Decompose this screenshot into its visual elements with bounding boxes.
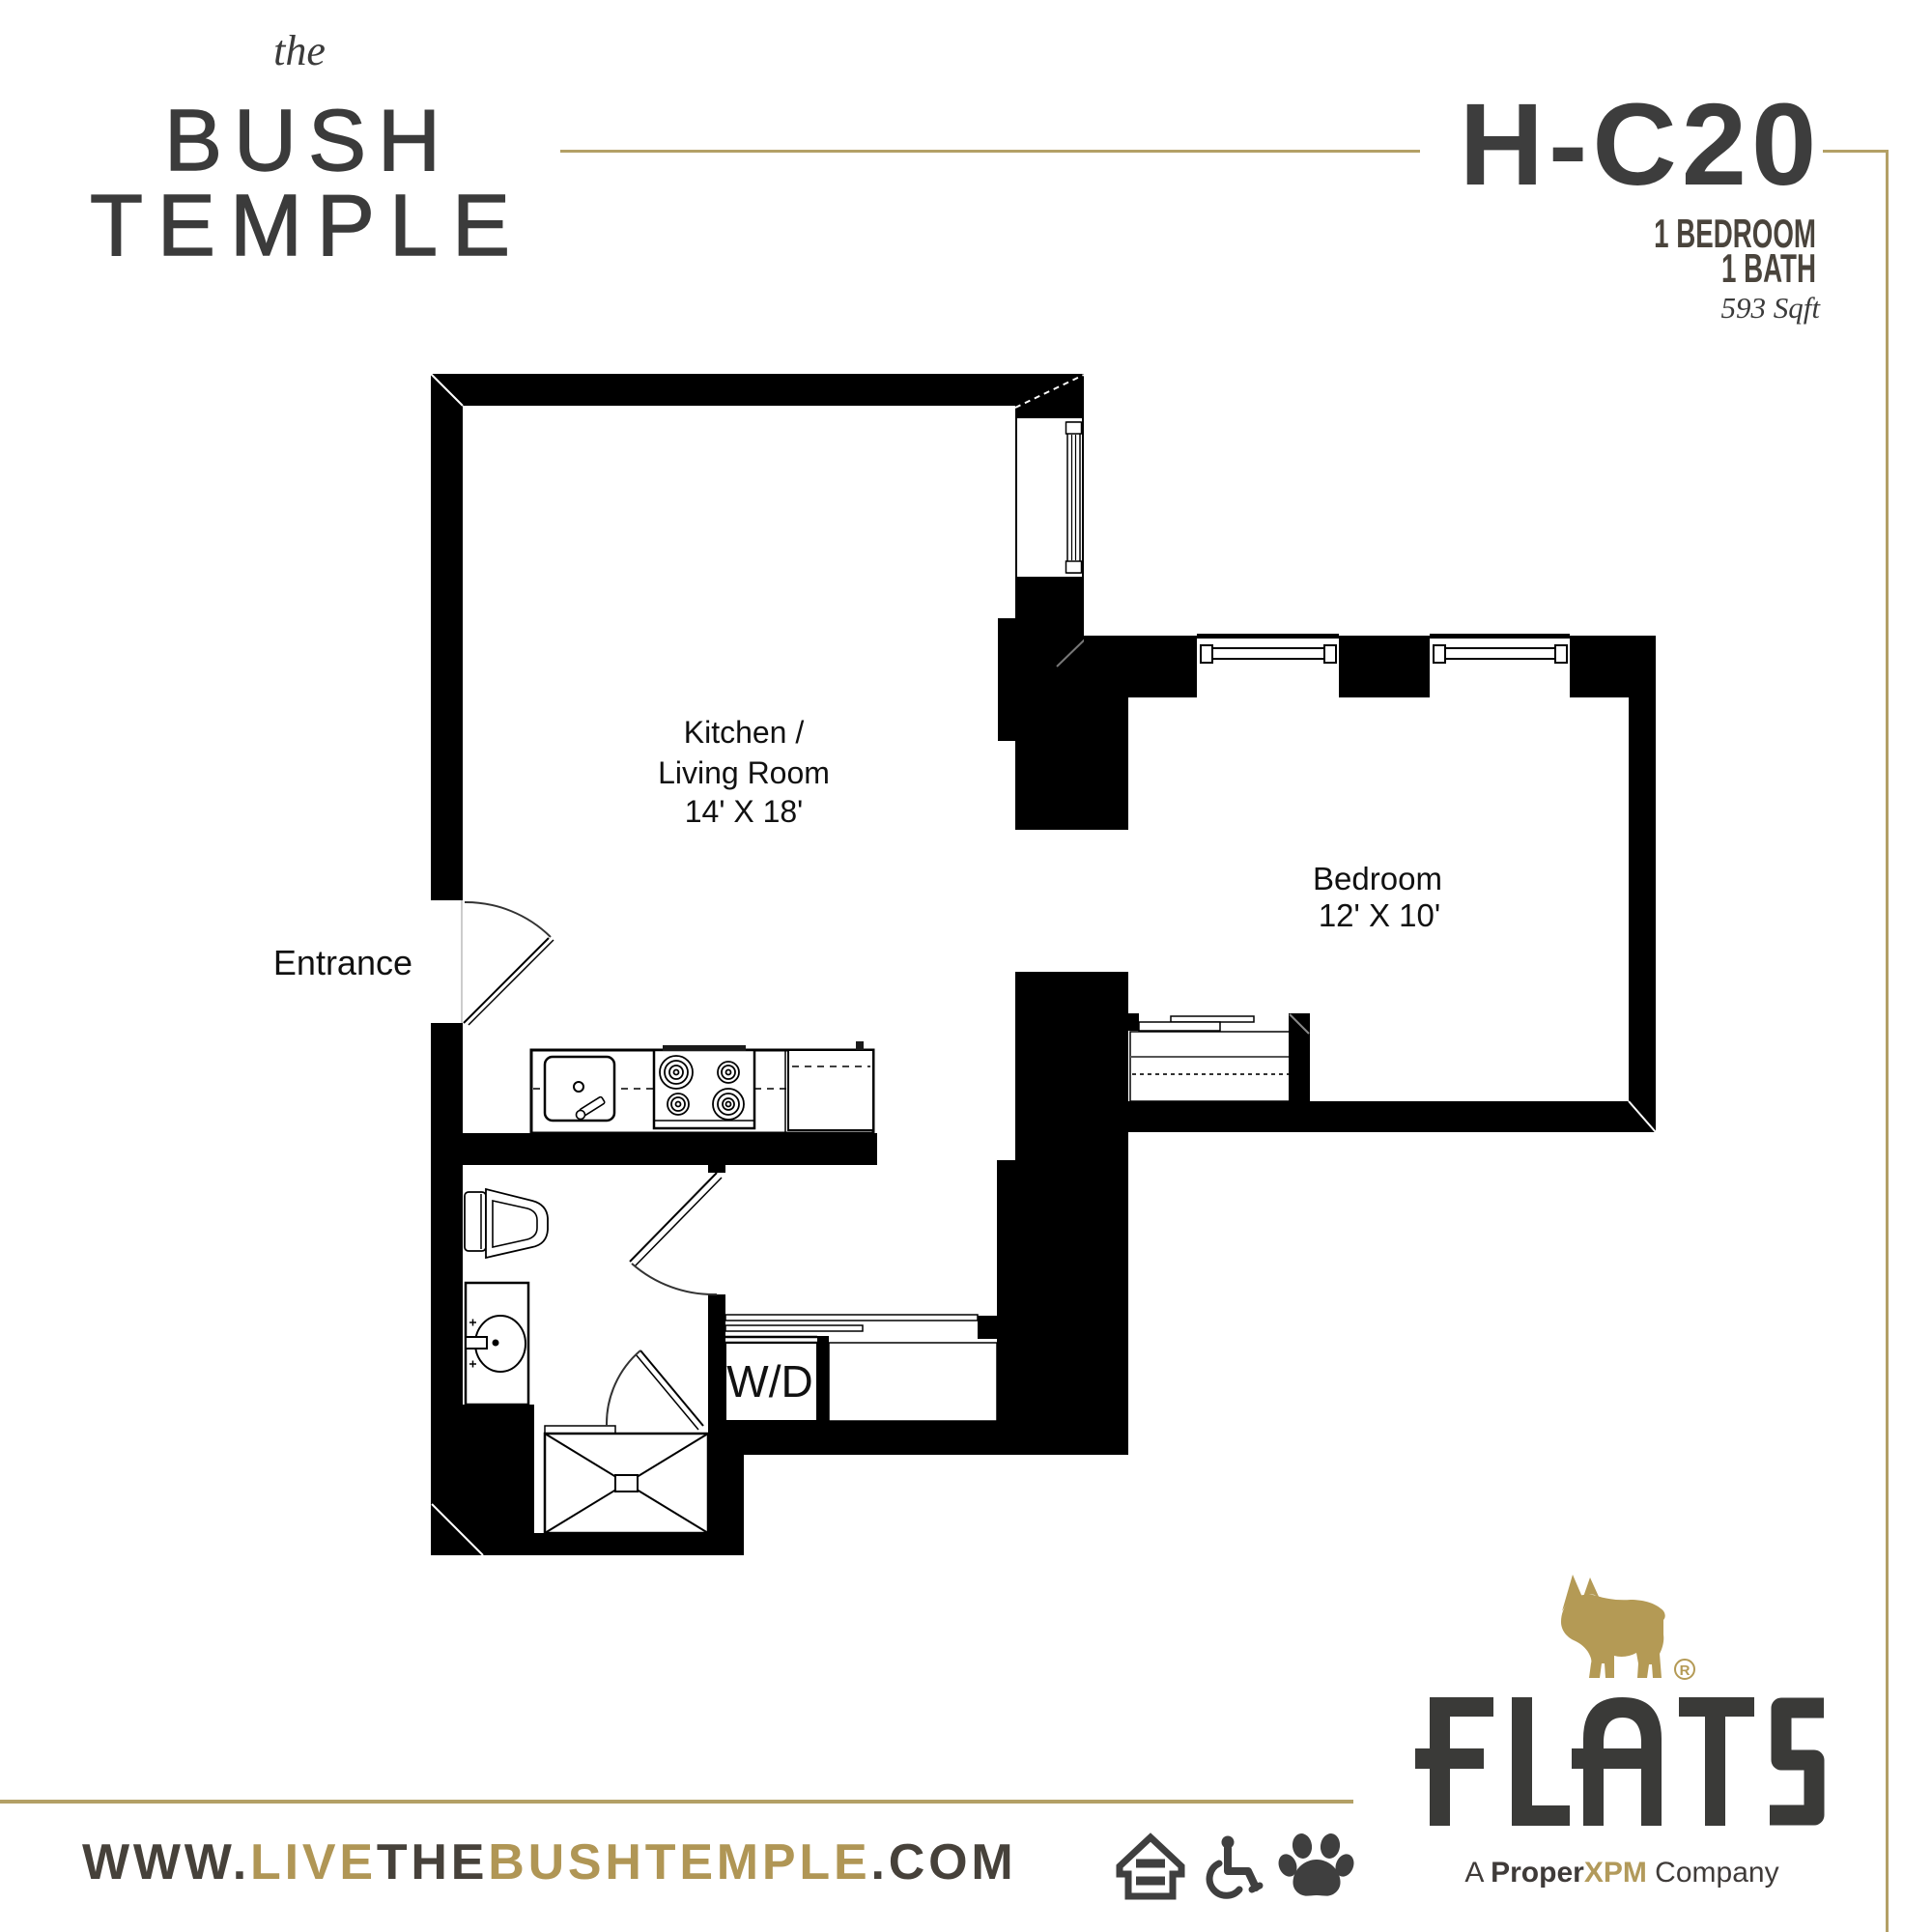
svg-text:H-C20: H-C20 — [1460, 78, 1822, 210]
svg-text:BUSH: BUSH — [164, 93, 452, 189]
svg-text:Kitchen /: Kitchen / — [684, 715, 805, 750]
svg-text:12' X 10': 12' X 10' — [1319, 897, 1440, 933]
svg-text:1 BATH: 1 BATH — [1721, 245, 1816, 291]
svg-text:TEMPLE: TEMPLE — [90, 178, 525, 274]
svg-text:593 Sqft: 593 Sqft — [1721, 291, 1822, 325]
svg-text:A ProperXPM Company: A ProperXPM Company — [1464, 1857, 1778, 1889]
svg-text:14' X 18': 14' X 18' — [685, 794, 804, 829]
svg-text:WWW.LIVETHEBUSHTEMPLE.COM: WWW.LIVETHEBUSHTEMPLE.COM — [82, 1834, 1016, 1890]
svg-text:Entrance: Entrance — [273, 943, 412, 982]
svg-text:Bedroom: Bedroom — [1313, 861, 1442, 896]
svg-text:W/D: W/D — [726, 1356, 812, 1406]
svg-text:Living Room: Living Room — [658, 755, 830, 790]
svg-text:R: R — [1680, 1662, 1690, 1679]
svg-text:the: the — [273, 27, 326, 74]
